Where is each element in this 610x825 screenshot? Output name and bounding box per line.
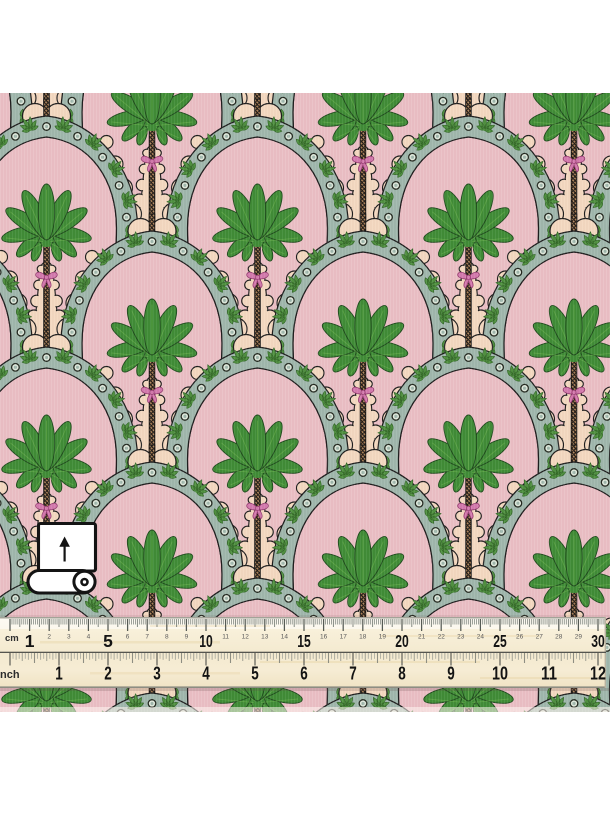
svg-text:20: 20 (395, 631, 409, 651)
svg-text:2: 2 (104, 664, 112, 684)
svg-text:7: 7 (349, 664, 357, 684)
svg-text:inch: inch (0, 669, 20, 681)
svg-text:24: 24 (477, 634, 485, 641)
svg-text:5: 5 (103, 631, 113, 651)
svg-text:9: 9 (447, 664, 455, 684)
svg-text:21: 21 (418, 634, 426, 641)
svg-text:29: 29 (575, 634, 583, 641)
svg-text:10: 10 (492, 664, 508, 684)
svg-text:10: 10 (199, 631, 213, 651)
svg-text:5: 5 (251, 664, 259, 684)
svg-text:6: 6 (300, 664, 308, 684)
svg-text:15: 15 (297, 631, 311, 651)
svg-text:13: 13 (261, 634, 269, 641)
svg-text:22: 22 (438, 634, 446, 641)
svg-text:2: 2 (47, 634, 51, 641)
svg-text:23: 23 (457, 634, 465, 641)
svg-text:4: 4 (87, 634, 91, 641)
svg-text:3: 3 (153, 664, 161, 684)
svg-text:4: 4 (202, 664, 210, 684)
svg-text:19: 19 (379, 634, 387, 641)
svg-text:12: 12 (242, 634, 250, 641)
svg-text:8: 8 (398, 664, 406, 684)
svg-text:1: 1 (55, 664, 63, 684)
svg-text:18: 18 (359, 634, 367, 641)
svg-text:6: 6 (126, 634, 130, 641)
svg-text:25: 25 (493, 631, 507, 651)
svg-text:30: 30 (591, 631, 605, 651)
svg-text:1: 1 (25, 631, 35, 651)
svg-text:3: 3 (67, 634, 71, 641)
svg-text:14: 14 (281, 634, 289, 641)
svg-text:cm: cm (5, 633, 19, 644)
svg-text:9: 9 (185, 634, 189, 641)
svg-text:17: 17 (340, 634, 348, 641)
svg-text:16: 16 (320, 634, 328, 641)
svg-text:26: 26 (516, 634, 524, 641)
svg-text:27: 27 (536, 634, 544, 641)
svg-text:28: 28 (555, 634, 563, 641)
svg-text:11: 11 (541, 664, 557, 684)
svg-text:12: 12 (590, 664, 606, 684)
svg-text:11: 11 (222, 634, 229, 641)
svg-text:7: 7 (145, 634, 149, 641)
svg-text:8: 8 (165, 634, 169, 641)
